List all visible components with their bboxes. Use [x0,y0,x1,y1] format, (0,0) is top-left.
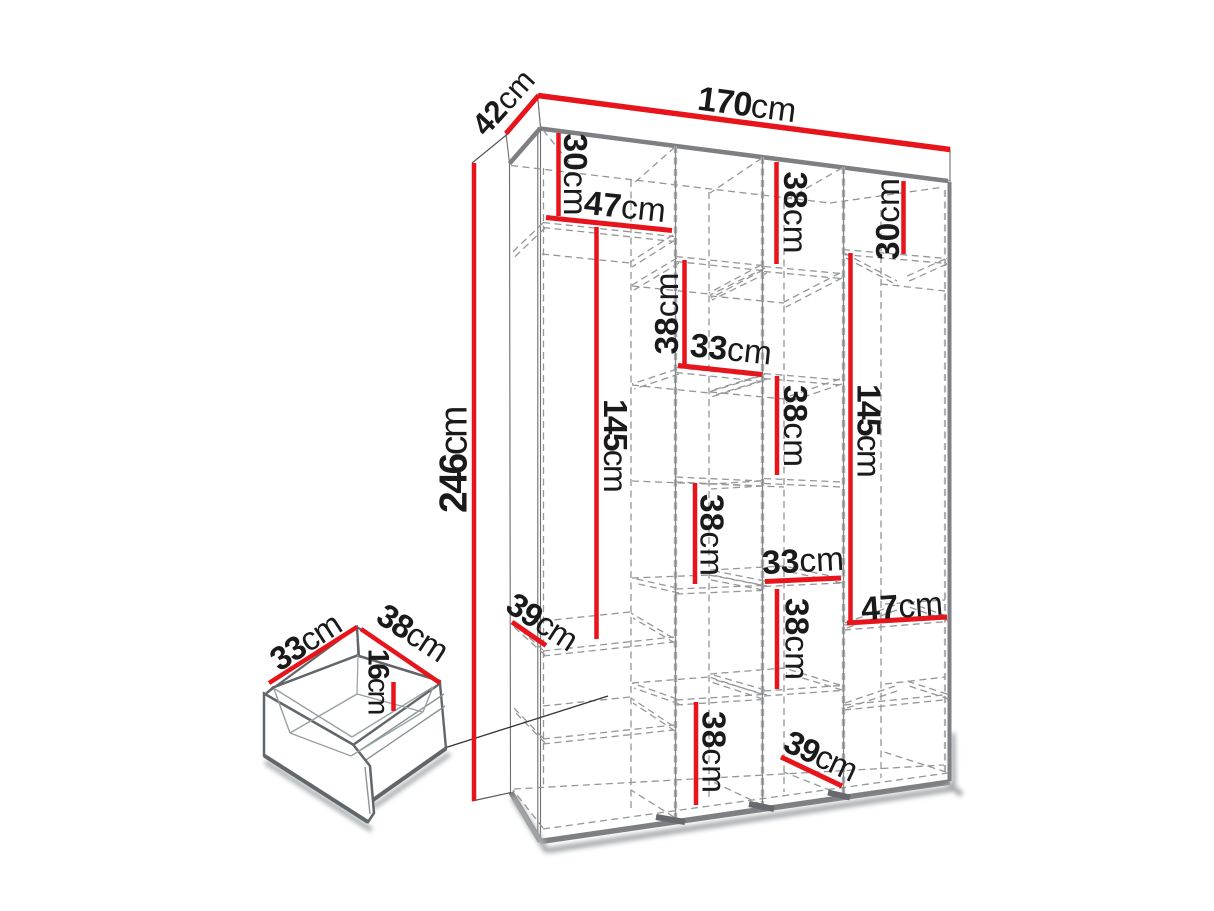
svg-text:246cm: 246cm [432,408,475,513]
svg-text:145cm: 145cm [850,384,887,476]
svg-text:38cm: 38cm [693,494,730,576]
svg-text:33cm: 33cm [761,540,845,581]
svg-text:145cm: 145cm [597,399,634,491]
svg-text:30cm: 30cm [870,178,907,260]
svg-text:38cm: 38cm [778,598,815,680]
svg-text:38cm: 38cm [649,273,686,355]
svg-text:47cm: 47cm [860,585,944,628]
svg-text:38cm: 38cm [777,385,814,467]
svg-text:38cm: 38cm [777,172,814,254]
svg-text:16cm: 16cm [362,649,395,715]
svg-text:38cm: 38cm [695,711,732,793]
